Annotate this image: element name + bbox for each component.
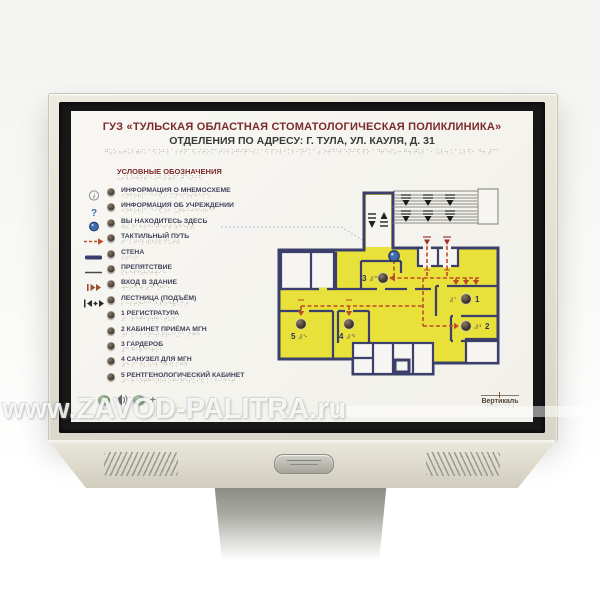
mnemonic-panel: ГУЗ «ТУЛЬСКАЯ ОБЛАСТНАЯ СТОМАТОЛОГИЧЕСКА… — [71, 111, 533, 422]
speaker-grille-right — [426, 452, 500, 476]
watermark: www.ZAVOD-PALITRA.ru — [2, 393, 346, 426]
room-label-braille: ⠼⠙ — [346, 334, 355, 341]
room-label: 3 — [362, 274, 367, 283]
building-entrance-markers — [423, 237, 451, 245]
room-label-braille: ⠼⠁ — [449, 297, 458, 304]
kiosk-stand — [213, 488, 388, 560]
stair-markers — [401, 195, 455, 222]
room-label-braille: ⠼⠑ — [298, 334, 307, 341]
watermark-band — [328, 406, 600, 417]
room-label: 5 — [291, 332, 296, 341]
panel-subtitle: ОТДЕЛЕНИЯ ПО АДРЕСУ: Г. ТУЛА, УЛ. КАУЛЯ,… — [71, 135, 533, 147]
you-are-here-dot — [389, 251, 399, 261]
maker-logo-name: Вертикаль — [475, 398, 525, 405]
room-label: 4 — [339, 332, 344, 341]
speaker-grille-left — [104, 452, 178, 476]
entrance-stairs — [393, 189, 498, 224]
product-photo: www.ZAVOD-PALITRA.ru ГУЗ «ТУЛЬСКАЯ ОБЛАС… — [0, 0, 600, 600]
screen-bezel: ГУЗ «ТУЛЬСКАЯ ОБЛАСТНАЯ СТОМАТОЛОГИЧЕСКА… — [59, 102, 545, 433]
dot-highlight — [391, 253, 394, 256]
kiosk-frame: ГУЗ «ТУЛЬСКАЯ ОБЛАСТНАЯ СТОМАТОЛОГИЧЕСКА… — [48, 93, 558, 442]
room-label: 2 — [485, 322, 490, 331]
title-braille-line: ⠛⠥⠵ ⠦⠞⠥⠇⠾⠎⠅⠁⠫ ⠕⠃⠇⠁⠎⠞⠝⠁⠫ ⠎⠞⠕⠍⠁⠞⠕⠇⠕⠛⠊⠟⠑⠎⠅⠁… — [71, 149, 533, 156]
floor-plan: 3 ⠼⠉ 5 ⠼⠑ 4 ⠼⠙ ⠼⠁ 1 ⠼⠃ 2 — [71, 166, 533, 416]
kiosk-badge — [274, 454, 334, 474]
room-label-braille: ⠼⠃ — [474, 324, 483, 331]
kiosk-chin — [48, 440, 556, 488]
maker-logo-mark — [475, 392, 525, 398]
room-label-braille: ⠼⠉ — [369, 276, 378, 283]
panel-title: ГУЗ «ТУЛЬСКАЯ ОБЛАСТНАЯ СТОМАТОЛОГИЧЕСКА… — [71, 121, 533, 133]
room-label: 1 — [475, 295, 480, 304]
